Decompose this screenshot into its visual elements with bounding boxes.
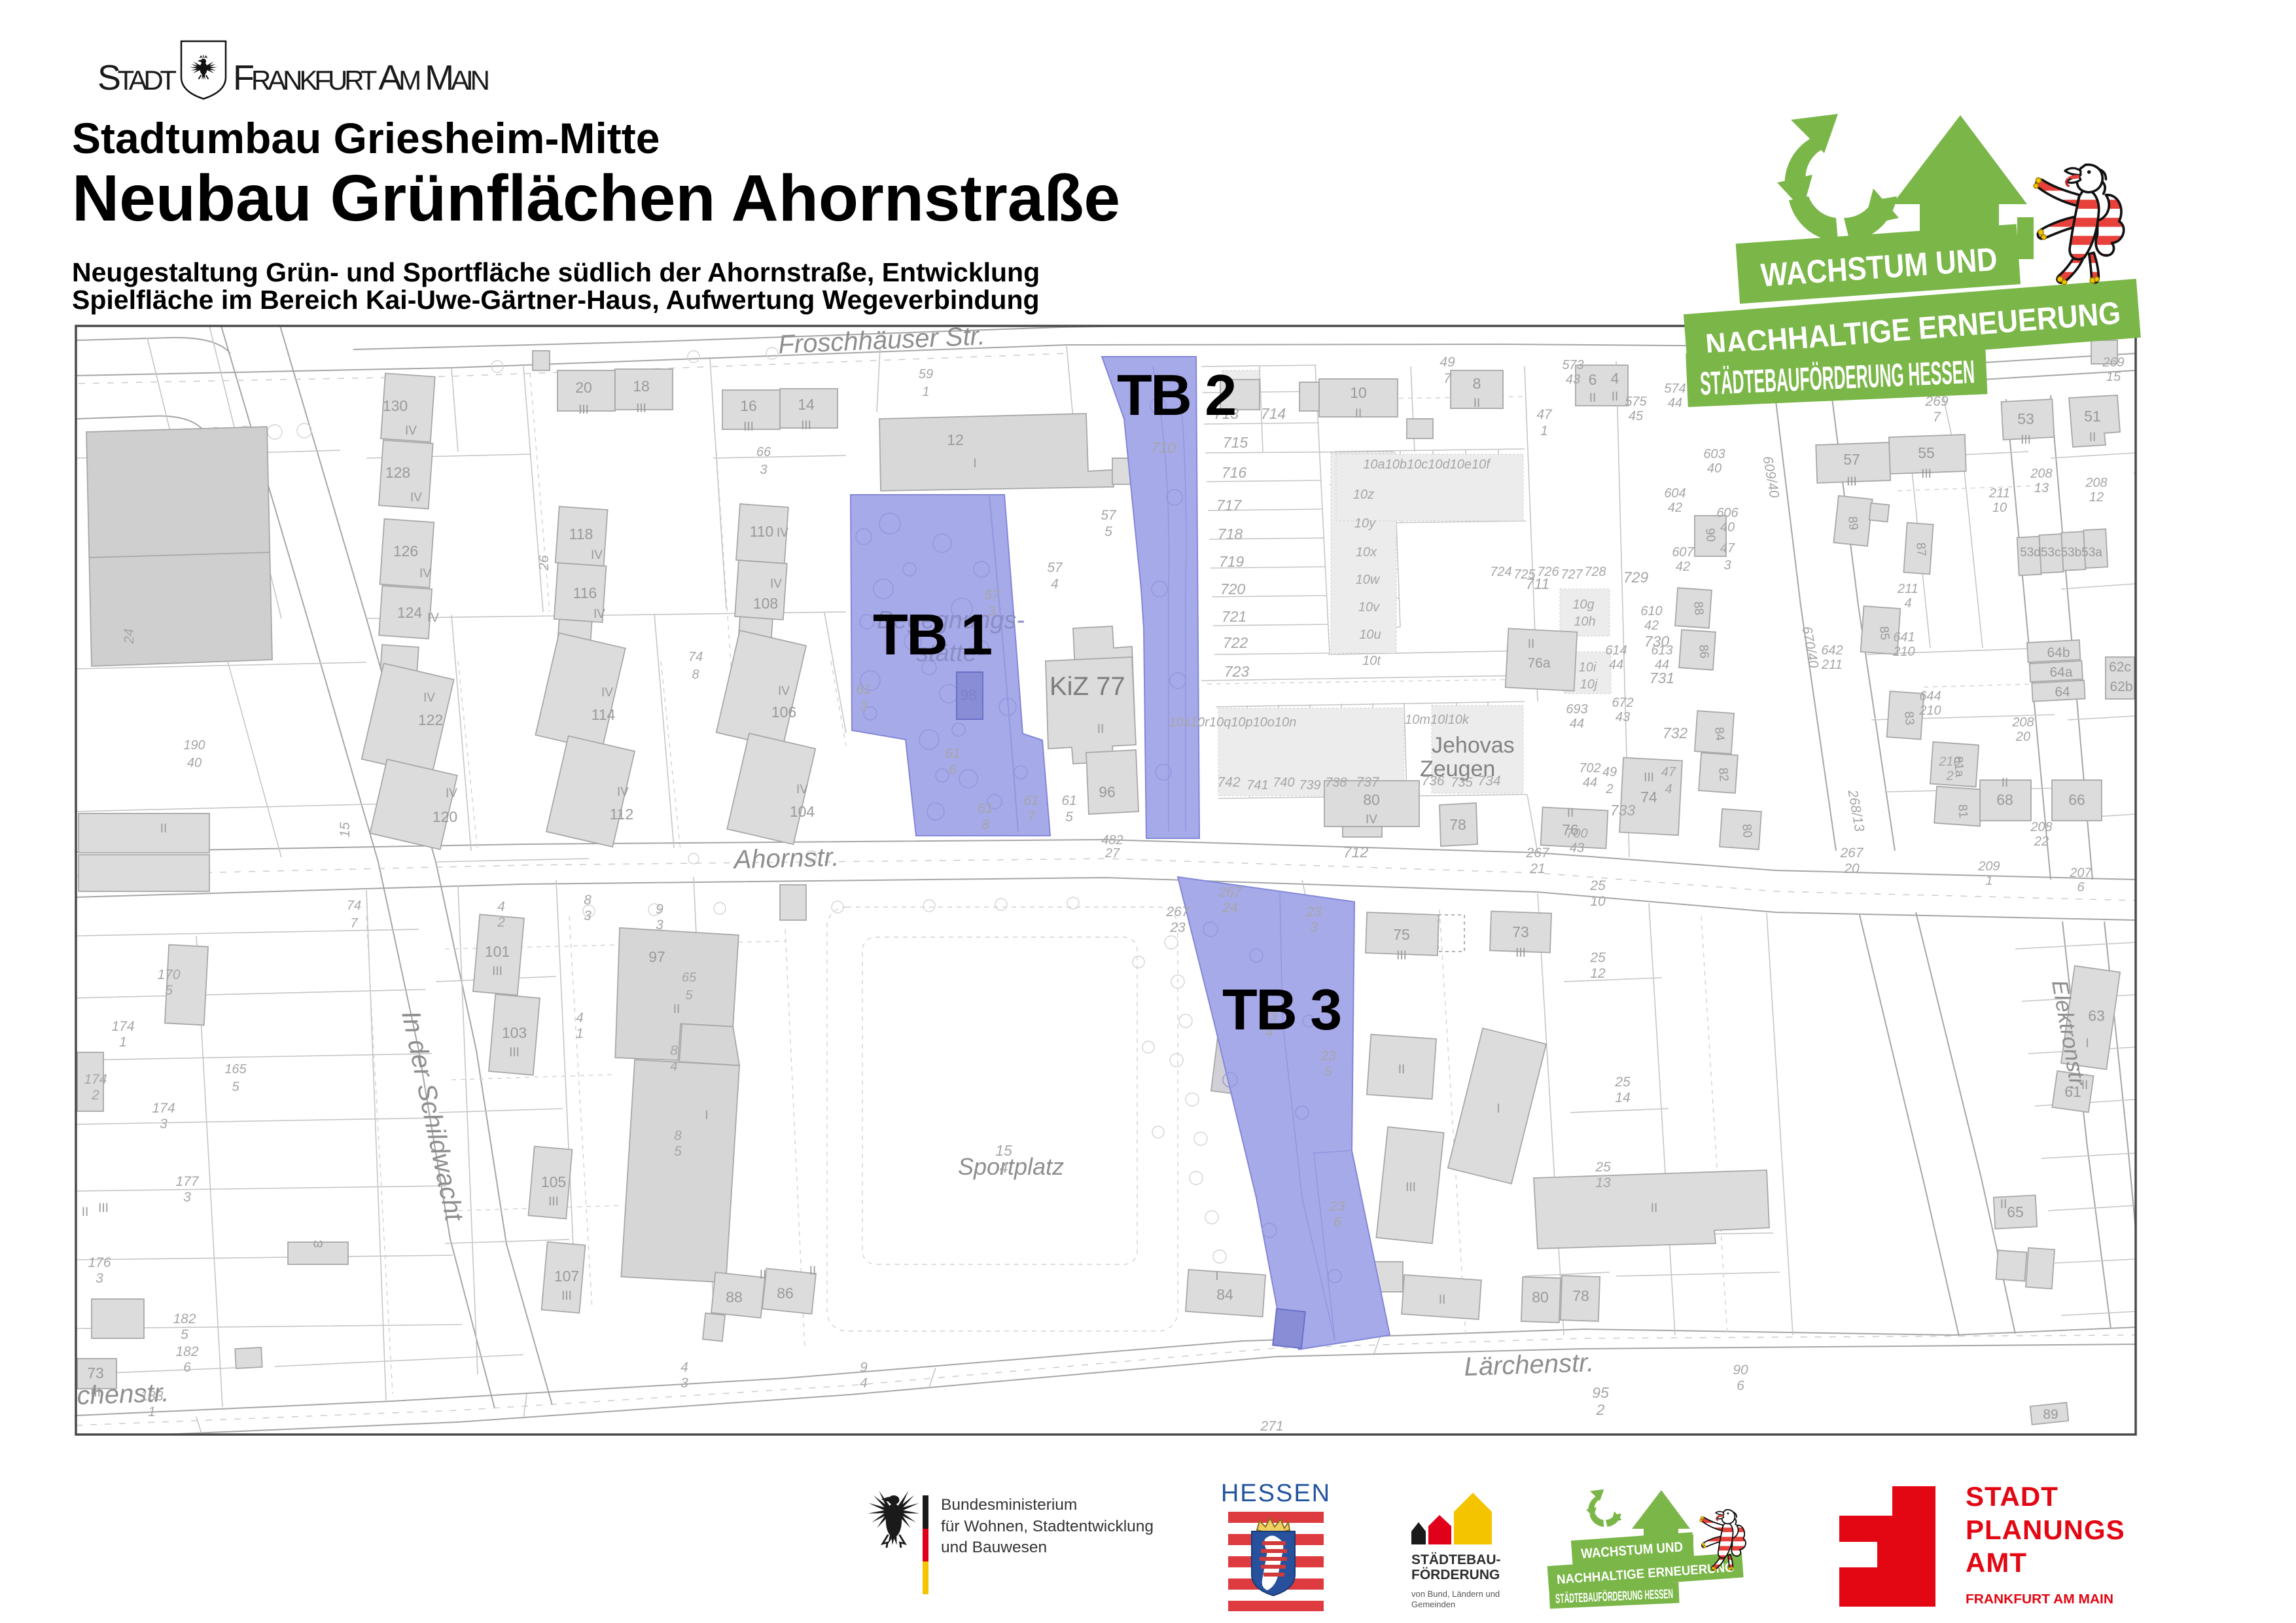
svg-text:Ahornstr.: Ahornstr. bbox=[732, 843, 839, 874]
svg-text:43: 43 bbox=[1570, 841, 1584, 855]
svg-text:642: 642 bbox=[1821, 643, 1843, 658]
svg-text:Spielfläche im Bereich Kai-Uwe: Spielfläche im Bereich Kai-Uwe-Gärtner-H… bbox=[72, 285, 1040, 315]
svg-text:ω: ω bbox=[313, 1237, 323, 1251]
svg-text:23: 23 bbox=[1305, 904, 1322, 919]
svg-text:672: 672 bbox=[1612, 696, 1633, 710]
svg-text:23: 23 bbox=[1169, 920, 1186, 935]
svg-text:22: 22 bbox=[2034, 834, 2049, 849]
svg-text:3: 3 bbox=[1310, 920, 1318, 935]
svg-text:II: II bbox=[2002, 776, 2009, 790]
svg-text:183: 183 bbox=[140, 1389, 163, 1404]
svg-text:I: I bbox=[1215, 1270, 1218, 1283]
svg-text:89: 89 bbox=[2043, 1407, 2058, 1422]
svg-text:106: 106 bbox=[771, 704, 796, 721]
svg-text:II: II bbox=[809, 1264, 817, 1278]
svg-text:III: III bbox=[636, 402, 646, 416]
svg-text:88: 88 bbox=[726, 1289, 743, 1306]
svg-text:95: 95 bbox=[1592, 1384, 1609, 1401]
svg-text:177: 177 bbox=[175, 1174, 199, 1189]
svg-text:68: 68 bbox=[1996, 791, 2013, 808]
svg-text:25: 25 bbox=[1589, 950, 1606, 965]
svg-text:49: 49 bbox=[1439, 355, 1455, 370]
svg-text:II: II bbox=[82, 1205, 89, 1219]
svg-text:63: 63 bbox=[2088, 1007, 2105, 1024]
svg-text:15: 15 bbox=[2106, 370, 2121, 384]
svg-text:II: II bbox=[1398, 1063, 1405, 1077]
svg-text:II: II bbox=[1097, 722, 1104, 736]
svg-text:80: 80 bbox=[1363, 791, 1380, 808]
svg-text:6: 6 bbox=[1737, 1378, 1744, 1393]
svg-text:4: 4 bbox=[670, 1059, 678, 1074]
svg-text:III: III bbox=[1846, 475, 1857, 489]
svg-text:715: 715 bbox=[1223, 434, 1248, 451]
svg-text:Lärchenstr.: Lärchenstr. bbox=[1464, 1348, 1595, 1382]
svg-text:TB 3: TB 3 bbox=[1222, 977, 1341, 1042]
svg-text:4: 4 bbox=[1051, 577, 1059, 592]
svg-text:209: 209 bbox=[1977, 859, 2000, 874]
svg-text:103: 103 bbox=[502, 1024, 527, 1041]
svg-text:2: 2 bbox=[91, 1088, 99, 1103]
svg-text:6: 6 bbox=[2077, 880, 2085, 895]
svg-text:8: 8 bbox=[692, 668, 699, 682]
svg-text:II: II bbox=[1474, 397, 1481, 410]
svg-text:III: III bbox=[578, 403, 589, 417]
svg-text:64b: 64b bbox=[2047, 645, 2070, 660]
svg-text:II: II bbox=[760, 1268, 767, 1282]
svg-text:15: 15 bbox=[338, 822, 353, 838]
svg-text:III: III bbox=[561, 1289, 572, 1303]
svg-text:10v: 10v bbox=[1358, 600, 1380, 615]
svg-text:735: 735 bbox=[1451, 776, 1473, 790]
svg-text:712: 712 bbox=[1343, 844, 1369, 861]
svg-text:Jehovas: Jehovas bbox=[1432, 733, 1515, 758]
svg-text:3: 3 bbox=[160, 1116, 168, 1132]
svg-text:10t: 10t bbox=[1362, 654, 1381, 668]
svg-text:170: 170 bbox=[157, 967, 180, 982]
svg-text:122: 122 bbox=[418, 711, 443, 728]
svg-text:7: 7 bbox=[1027, 810, 1036, 825]
svg-text:23: 23 bbox=[1320, 1048, 1336, 1063]
svg-text:693: 693 bbox=[1566, 702, 1587, 717]
svg-text:14: 14 bbox=[798, 396, 815, 413]
svg-text:81a: 81a bbox=[1951, 756, 1967, 778]
svg-text:42: 42 bbox=[1668, 501, 1682, 515]
svg-text:I: I bbox=[1496, 1102, 1500, 1116]
svg-text:TB 2: TB 2 bbox=[1117, 363, 1235, 427]
svg-text:61: 61 bbox=[978, 801, 993, 816]
svg-text:82: 82 bbox=[1716, 767, 1731, 782]
svg-text:722: 722 bbox=[1223, 634, 1248, 651]
svg-text:18: 18 bbox=[633, 378, 650, 395]
svg-text:574: 574 bbox=[1664, 382, 1686, 396]
svg-text:702: 702 bbox=[1579, 761, 1600, 776]
svg-text:734: 734 bbox=[1477, 774, 1500, 789]
svg-text:10: 10 bbox=[1590, 894, 1606, 909]
svg-text:44: 44 bbox=[1609, 658, 1623, 672]
svg-text:10: 10 bbox=[1992, 501, 2007, 515]
svg-text:61: 61 bbox=[1061, 793, 1076, 808]
svg-text:211: 211 bbox=[1988, 486, 2010, 501]
svg-text:74: 74 bbox=[347, 899, 361, 913]
svg-text:75: 75 bbox=[1393, 926, 1410, 943]
svg-text:207: 207 bbox=[2069, 866, 2092, 880]
svg-text:59: 59 bbox=[919, 367, 933, 382]
svg-text:165: 165 bbox=[224, 1062, 247, 1077]
svg-text:76: 76 bbox=[1562, 821, 1579, 838]
svg-text:12: 12 bbox=[947, 431, 964, 448]
svg-text:24: 24 bbox=[1222, 901, 1237, 916]
svg-text:90: 90 bbox=[1703, 527, 1718, 543]
svg-text:724: 724 bbox=[1490, 565, 1511, 579]
svg-text:44: 44 bbox=[1655, 658, 1669, 672]
svg-text:II: II bbox=[2081, 1079, 2089, 1092]
svg-text:482: 482 bbox=[1101, 833, 1123, 847]
svg-text:644: 644 bbox=[1919, 689, 1941, 704]
svg-text:42: 42 bbox=[1644, 618, 1659, 633]
svg-text:24: 24 bbox=[122, 628, 137, 644]
svg-text:174: 174 bbox=[111, 1019, 134, 1034]
svg-text:9: 9 bbox=[860, 1360, 868, 1375]
svg-text:IV: IV bbox=[796, 783, 808, 796]
svg-text:130: 130 bbox=[383, 397, 408, 414]
svg-text:5: 5 bbox=[1324, 1064, 1332, 1079]
svg-text:26: 26 bbox=[537, 555, 552, 571]
svg-text:5: 5 bbox=[232, 1080, 239, 1094]
svg-text:III: III bbox=[801, 419, 811, 433]
svg-text:II: II bbox=[1651, 1202, 1658, 1215]
svg-text:25: 25 bbox=[1595, 1160, 1611, 1175]
svg-text:II: II bbox=[1355, 407, 1362, 421]
svg-text:3: 3 bbox=[584, 908, 592, 923]
svg-text:4: 4 bbox=[860, 1376, 868, 1391]
svg-text:83: 83 bbox=[1901, 711, 1916, 726]
svg-text:55: 55 bbox=[1918, 444, 1935, 461]
svg-text:723: 723 bbox=[1224, 663, 1250, 680]
svg-text:10u: 10u bbox=[1359, 628, 1381, 642]
svg-text:44: 44 bbox=[1583, 776, 1597, 790]
svg-text:182: 182 bbox=[175, 1344, 198, 1359]
svg-text:5: 5 bbox=[1104, 524, 1112, 539]
svg-text:10y: 10y bbox=[1354, 516, 1376, 531]
svg-text:607: 607 bbox=[1672, 545, 1694, 560]
svg-text:III: III bbox=[1396, 949, 1407, 963]
svg-text:112: 112 bbox=[610, 806, 634, 823]
svg-text:1: 1 bbox=[119, 1035, 127, 1050]
svg-text:716: 716 bbox=[1222, 464, 1247, 481]
svg-text:710: 710 bbox=[1151, 439, 1176, 456]
svg-text:10: 10 bbox=[1350, 384, 1367, 401]
svg-text:107: 107 bbox=[554, 1268, 579, 1285]
svg-text:III: III bbox=[90, 1386, 101, 1400]
svg-text:3: 3 bbox=[760, 463, 767, 477]
svg-text:43: 43 bbox=[1616, 710, 1630, 724]
svg-text:208: 208 bbox=[2030, 820, 2052, 834]
svg-text:10j: 10j bbox=[1580, 677, 1598, 692]
svg-text:3: 3 bbox=[860, 699, 868, 714]
svg-text:II: II bbox=[160, 822, 168, 836]
svg-text:84: 84 bbox=[1712, 726, 1727, 741]
svg-text:II: II bbox=[1567, 806, 1574, 820]
svg-text:FÖRDERUNG: FÖRDERUNG bbox=[1411, 1567, 1500, 1582]
svg-text:II: II bbox=[1528, 637, 1535, 651]
svg-text:21: 21 bbox=[1529, 861, 1545, 876]
svg-text:717: 717 bbox=[1216, 497, 1243, 514]
svg-text:208: 208 bbox=[2030, 467, 2052, 481]
svg-text:8: 8 bbox=[1473, 375, 1481, 392]
svg-text:61: 61 bbox=[1023, 793, 1038, 808]
svg-text:10m10l10k: 10m10l10k bbox=[1405, 713, 1470, 727]
svg-text:IV: IV bbox=[427, 611, 439, 625]
svg-text:737: 737 bbox=[1356, 775, 1379, 790]
svg-text:711: 711 bbox=[1526, 575, 1550, 592]
svg-text:741: 741 bbox=[1246, 778, 1268, 793]
svg-text:575: 575 bbox=[1625, 395, 1647, 409]
svg-text:721: 721 bbox=[1222, 608, 1246, 625]
svg-text:III: III bbox=[2021, 433, 2031, 447]
svg-text:II: II bbox=[1439, 1293, 1446, 1307]
svg-text:211: 211 bbox=[1821, 658, 1843, 672]
svg-text:8: 8 bbox=[981, 817, 989, 832]
svg-text:47: 47 bbox=[1720, 541, 1735, 556]
svg-text:Neubau Grünflächen Ahornstraße: Neubau Grünflächen Ahornstraße bbox=[72, 162, 1120, 235]
svg-text:15: 15 bbox=[995, 1142, 1012, 1159]
svg-text:8: 8 bbox=[584, 893, 592, 908]
svg-text:104: 104 bbox=[790, 803, 815, 820]
svg-text:610: 610 bbox=[1640, 604, 1662, 618]
svg-text:271: 271 bbox=[1260, 1419, 1283, 1434]
svg-text:AMT: AMT bbox=[1966, 1547, 2027, 1578]
svg-text:57: 57 bbox=[1101, 508, 1117, 523]
svg-text:114: 114 bbox=[592, 706, 616, 723]
svg-text:Neugestaltung Grün- und Sportf: Neugestaltung Grün- und Sportfläche südl… bbox=[72, 257, 1040, 287]
svg-text:IV: IV bbox=[778, 685, 790, 698]
svg-text:40: 40 bbox=[187, 756, 202, 770]
svg-text:II: II bbox=[2000, 1198, 2007, 1211]
svg-text:20: 20 bbox=[575, 379, 592, 396]
svg-text:10i: 10i bbox=[1579, 660, 1597, 675]
svg-text:II: II bbox=[1589, 391, 1597, 405]
svg-text:613: 613 bbox=[1651, 643, 1672, 658]
svg-text:47: 47 bbox=[1661, 765, 1676, 779]
svg-text:44: 44 bbox=[1668, 396, 1682, 410]
svg-text:210: 210 bbox=[1892, 645, 1915, 659]
svg-text:98: 98 bbox=[960, 687, 977, 704]
svg-text:13: 13 bbox=[1595, 1175, 1611, 1190]
svg-text:IV: IV bbox=[423, 691, 435, 705]
svg-text:738: 738 bbox=[1325, 776, 1347, 790]
svg-text:739: 739 bbox=[1299, 778, 1320, 793]
svg-text:STÄDTEBAU-: STÄDTEBAU- bbox=[1411, 1552, 1501, 1567]
svg-text:4: 4 bbox=[1904, 596, 1911, 611]
svg-text:182: 182 bbox=[173, 1311, 196, 1327]
svg-text:208: 208 bbox=[2011, 715, 2034, 730]
svg-text:I: I bbox=[2085, 1037, 2089, 1050]
svg-text:73: 73 bbox=[87, 1364, 104, 1382]
svg-text:614: 614 bbox=[1605, 643, 1627, 658]
svg-text:718: 718 bbox=[1218, 526, 1243, 543]
svg-text:84: 84 bbox=[1216, 1286, 1233, 1303]
svg-text:3: 3 bbox=[183, 1190, 191, 1205]
svg-text:10a10b10c10d10e10f: 10a10b10c10d10e10f bbox=[1363, 457, 1491, 472]
svg-text:Stadtumbau Griesheim-Mitte: Stadtumbau Griesheim-Mitte bbox=[72, 114, 660, 162]
svg-text:606: 606 bbox=[1716, 506, 1739, 520]
svg-text:120: 120 bbox=[433, 808, 457, 825]
svg-text:25: 25 bbox=[1614, 1075, 1631, 1090]
svg-text:13: 13 bbox=[2034, 481, 2049, 495]
svg-text:40: 40 bbox=[1707, 461, 1722, 476]
svg-text:727: 727 bbox=[1561, 567, 1583, 582]
svg-text:20: 20 bbox=[1843, 861, 1860, 876]
svg-text:96: 96 bbox=[1099, 783, 1116, 800]
svg-text:III: III bbox=[1405, 1181, 1416, 1194]
svg-text:III: III bbox=[548, 1195, 559, 1209]
svg-text:IV: IV bbox=[419, 567, 431, 580]
svg-text:719: 719 bbox=[1219, 553, 1245, 570]
svg-text:74: 74 bbox=[688, 650, 703, 664]
svg-text:8: 8 bbox=[670, 1043, 678, 1058]
svg-text:1: 1 bbox=[1540, 423, 1548, 438]
svg-text:7: 7 bbox=[1933, 410, 1941, 425]
svg-text:4: 4 bbox=[1611, 370, 1619, 387]
svg-text:10z: 10z bbox=[1353, 488, 1374, 502]
svg-text:IV: IV bbox=[601, 686, 613, 700]
svg-text:STADT: STADT bbox=[1966, 1481, 2058, 1512]
svg-text:97: 97 bbox=[648, 948, 665, 965]
svg-text:61: 61 bbox=[856, 682, 871, 697]
svg-text:27: 27 bbox=[1104, 846, 1120, 861]
svg-text:51: 51 bbox=[2084, 408, 2101, 425]
svg-text:10x: 10x bbox=[1356, 545, 1377, 560]
svg-text:10h: 10h bbox=[1574, 615, 1595, 629]
svg-text:73: 73 bbox=[1512, 923, 1529, 940]
svg-text:86: 86 bbox=[1696, 644, 1711, 659]
svg-text:4: 4 bbox=[576, 1010, 584, 1026]
svg-text:4: 4 bbox=[1000, 1159, 1008, 1176]
svg-text:PLANUNGS: PLANUNGS bbox=[1966, 1514, 2125, 1545]
svg-text:211: 211 bbox=[1897, 582, 1918, 596]
svg-text:90: 90 bbox=[1733, 1363, 1748, 1378]
svg-text:40: 40 bbox=[1720, 520, 1735, 535]
svg-text:IV: IV bbox=[591, 548, 603, 562]
svg-text:7: 7 bbox=[1443, 371, 1452, 386]
svg-text:8: 8 bbox=[674, 1128, 682, 1143]
svg-text:II: II bbox=[2089, 431, 2096, 444]
svg-text:57: 57 bbox=[1047, 560, 1063, 575]
svg-text:5: 5 bbox=[685, 988, 693, 1003]
svg-text:641: 641 bbox=[1893, 630, 1915, 645]
svg-text:267: 267 bbox=[1218, 885, 1242, 900]
svg-text:III: III bbox=[492, 965, 503, 978]
svg-text:74: 74 bbox=[1640, 789, 1657, 806]
svg-text:1: 1 bbox=[576, 1026, 584, 1041]
svg-text:IV: IV bbox=[405, 424, 417, 438]
svg-text:14: 14 bbox=[1615, 1090, 1630, 1105]
svg-text:TB 1: TB 1 bbox=[873, 602, 991, 667]
svg-text:66: 66 bbox=[756, 445, 771, 459]
svg-text:101: 101 bbox=[485, 943, 510, 960]
svg-text:78: 78 bbox=[1572, 1287, 1589, 1304]
svg-text:80: 80 bbox=[1739, 823, 1754, 838]
svg-text:FRANKFURT AM MAIN: FRANKFURT AM MAIN bbox=[1966, 1592, 2113, 1607]
svg-text:6: 6 bbox=[949, 762, 957, 777]
svg-text:5: 5 bbox=[181, 1327, 188, 1342]
svg-text:HESSEN: HESSEN bbox=[1221, 1480, 1331, 1507]
svg-text:6: 6 bbox=[183, 1360, 191, 1375]
svg-text:128: 128 bbox=[385, 464, 410, 481]
svg-text:732: 732 bbox=[1663, 724, 1688, 741]
svg-text:10g: 10g bbox=[1572, 597, 1594, 612]
svg-text:1: 1 bbox=[922, 385, 929, 399]
svg-text:88: 88 bbox=[1691, 601, 1706, 616]
svg-text:2: 2 bbox=[497, 915, 505, 930]
svg-text:II: II bbox=[673, 1003, 680, 1016]
svg-text:23: 23 bbox=[1329, 1199, 1345, 1214]
svg-text:von Bund, Ländern und: von Bund, Ländern und bbox=[1411, 1589, 1500, 1599]
svg-text:720: 720 bbox=[1220, 580, 1246, 597]
svg-text:III: III bbox=[509, 1046, 520, 1060]
svg-text:5: 5 bbox=[674, 1144, 682, 1159]
svg-text:49: 49 bbox=[1602, 765, 1617, 779]
svg-text:für Wohnen, Stadtentwicklung: für Wohnen, Stadtentwicklung bbox=[941, 1518, 1154, 1535]
svg-text:10w: 10w bbox=[1356, 573, 1381, 587]
svg-text:714: 714 bbox=[1261, 405, 1286, 422]
svg-text:190: 190 bbox=[183, 738, 205, 753]
svg-text:III: III bbox=[1644, 771, 1654, 785]
svg-text:6: 6 bbox=[1333, 1215, 1341, 1230]
svg-text:733: 733 bbox=[1610, 802, 1636, 819]
svg-text:42: 42 bbox=[1676, 560, 1690, 574]
svg-text:174: 174 bbox=[84, 1072, 107, 1087]
svg-text:573: 573 bbox=[1562, 358, 1583, 372]
svg-text:736: 736 bbox=[1421, 774, 1444, 789]
svg-text:16: 16 bbox=[740, 397, 757, 414]
svg-text:1: 1 bbox=[1985, 874, 1992, 888]
svg-text:740: 740 bbox=[1273, 776, 1294, 790]
svg-text:IV: IV bbox=[1366, 813, 1377, 827]
svg-text:7: 7 bbox=[350, 916, 358, 931]
svg-text:108: 108 bbox=[753, 595, 778, 612]
svg-text:12: 12 bbox=[2089, 490, 2104, 505]
svg-text:81: 81 bbox=[1955, 804, 1970, 819]
svg-text:IV: IV bbox=[617, 785, 629, 799]
svg-text:62b: 62b bbox=[2110, 679, 2132, 694]
svg-text:Gemeinden: Gemeinden bbox=[1411, 1599, 1455, 1609]
svg-text:IV: IV bbox=[777, 526, 788, 540]
svg-text:86: 86 bbox=[777, 1285, 794, 1302]
svg-text:und Bauwesen: und Bauwesen bbox=[941, 1539, 1047, 1556]
svg-text:66: 66 bbox=[2068, 791, 2085, 808]
svg-text:KiZ 77: KiZ 77 bbox=[1050, 672, 1125, 701]
svg-text:267: 267 bbox=[1839, 846, 1863, 861]
svg-text:Bundesministerium: Bundesministerium bbox=[941, 1496, 1077, 1514]
svg-text:208: 208 bbox=[2085, 476, 2107, 490]
svg-text:5: 5 bbox=[165, 983, 173, 998]
svg-text:57: 57 bbox=[984, 588, 1000, 603]
svg-text:3: 3 bbox=[96, 1271, 103, 1286]
svg-text:4: 4 bbox=[680, 1360, 688, 1375]
svg-text:57: 57 bbox=[1843, 451, 1860, 468]
svg-text:118: 118 bbox=[569, 526, 593, 543]
svg-text:4: 4 bbox=[1665, 782, 1672, 796]
svg-text:3: 3 bbox=[680, 1376, 688, 1391]
svg-text:110: 110 bbox=[750, 523, 774, 540]
svg-text:85: 85 bbox=[1877, 626, 1892, 641]
svg-text:4: 4 bbox=[497, 899, 505, 914]
svg-text:3: 3 bbox=[656, 918, 663, 933]
svg-text:729: 729 bbox=[1623, 569, 1649, 586]
svg-text:105: 105 bbox=[541, 1173, 566, 1190]
svg-text:9: 9 bbox=[656, 902, 663, 917]
